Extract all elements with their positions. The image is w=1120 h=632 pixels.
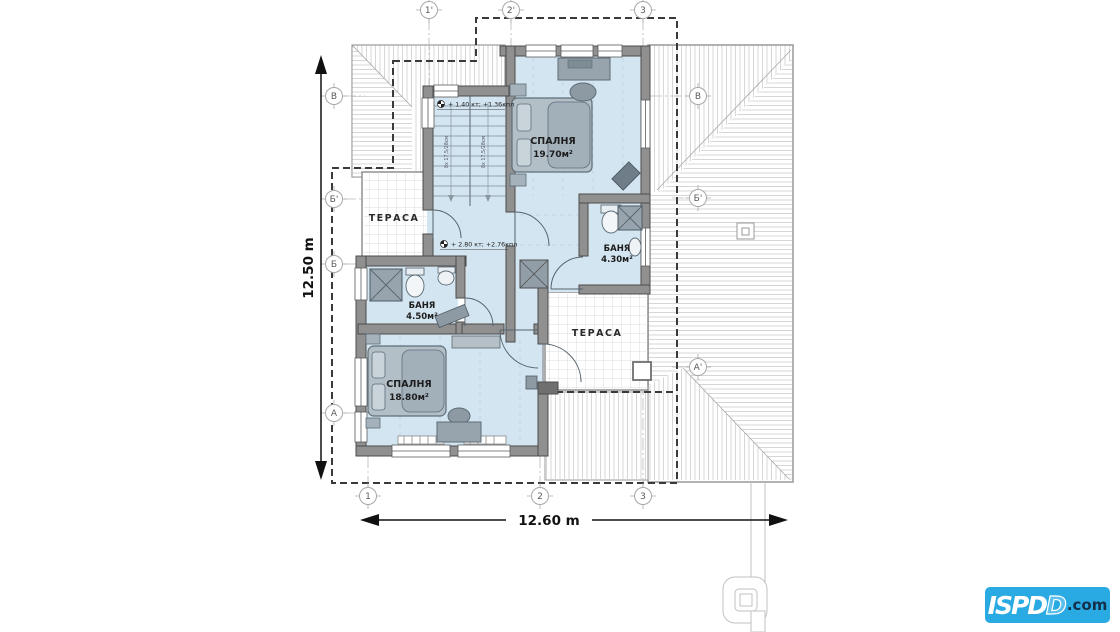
wall-unit-south (526, 376, 537, 389)
bath-west-label: БАНЯ (409, 301, 436, 311)
terrace-west-label: ТЕРАСА (369, 213, 420, 224)
terrace-east: ТЕРАСА (545, 292, 651, 390)
window (561, 45, 593, 57)
window (526, 45, 556, 57)
window (355, 358, 367, 406)
logo-text-suffix: .com (1067, 598, 1108, 613)
bath-east-area: 4.30м² (601, 255, 633, 265)
svg-text:3: 3 (640, 492, 646, 502)
duct-shaft (520, 260, 548, 288)
bedroom-south-label: СПАЛНЯ (386, 379, 431, 390)
bedroom-north-label: СПАЛНЯ (530, 136, 575, 147)
svg-text:Б: Б (331, 260, 337, 270)
level-annotation-lower: + 2.80 кт; +2.76кпл (440, 241, 517, 250)
window (641, 228, 650, 266)
stair-note-left: 8х 17,5/28см (444, 136, 450, 168)
svg-text:А: А (331, 409, 338, 419)
grid-marker-left-v: В (321, 83, 347, 109)
level-lower-text: + 2.80 кт; +2.76кпл (451, 242, 517, 249)
shower-east (618, 206, 642, 230)
chimney (737, 223, 754, 239)
level-upper-text: + 1.40 кт; +1.36кпл (448, 102, 514, 109)
level-annotation-upper: + 1.40 кт; +1.36кпл (437, 101, 514, 110)
grid-marker-left-b: Б (321, 251, 347, 277)
grid-marker-bottom-1: 1 (355, 483, 381, 509)
ispdd-logo[interactable]: ISPDD.com (985, 587, 1110, 623)
grid-marker-bottom-3: 3 (630, 483, 656, 509)
terrace-column (633, 362, 651, 380)
toilet-west (406, 268, 424, 297)
svg-text:В: В (331, 92, 337, 102)
bath-west-area: 4.50м² (406, 312, 438, 322)
grid-marker-bottom-2: 2 (527, 483, 553, 509)
svg-text:Б': Б' (694, 194, 703, 204)
window (458, 445, 510, 457)
window (355, 412, 367, 442)
floor-plan-page: ТЕРАСА ТЕРАСА 8х 17,5/28см 8х 17,5/28см (0, 0, 1120, 632)
window (392, 445, 450, 457)
window (434, 85, 458, 97)
logo-text-outline-d: D (1046, 593, 1066, 618)
svg-text:1: 1 (365, 492, 371, 502)
logo-text-main: ISPD (988, 593, 1046, 618)
grid-marker-left-b1: Б' (321, 186, 347, 212)
window (641, 100, 650, 148)
bath-east-label: БАНЯ (604, 244, 631, 254)
grid-marker-top-2: 2' (498, 0, 524, 23)
bedroom-north-area: 19.70м² (533, 150, 573, 160)
downpipe-detail (723, 482, 767, 632)
shower-west (370, 269, 402, 301)
sink-west (438, 267, 455, 285)
roof-right (648, 45, 793, 482)
svg-text:Б': Б' (330, 195, 339, 205)
svg-text:3: 3 (640, 6, 646, 16)
dimension-horizontal: 12.60 m (360, 510, 788, 529)
window (422, 98, 434, 128)
wardrobe-south (452, 336, 500, 348)
svg-text:2': 2' (507, 6, 515, 16)
window (355, 268, 367, 300)
sink-east (629, 238, 641, 256)
roof-bottom-center (545, 392, 648, 480)
dimension-vertical: 12.50 m (301, 55, 327, 480)
floor-plan-drawing: ТЕРАСА ТЕРАСА 8х 17,5/28см 8х 17,5/28см (0, 0, 1120, 632)
terrace-east-label: ТЕРАСА (572, 328, 623, 339)
grid-marker-top-3: 3 (630, 0, 656, 23)
stair-note-right: 8х 17,5/28см (481, 136, 487, 168)
dimension-vertical-label: 12.50 m (301, 237, 317, 298)
svg-text:А': А' (694, 363, 703, 373)
terrace-west: ТЕРАСА (362, 172, 428, 258)
window (598, 45, 622, 57)
bedroom-south-area: 18.80м² (389, 393, 429, 403)
svg-text:1': 1' (425, 6, 433, 16)
grid-marker-left-a: А (321, 400, 347, 426)
svg-text:2: 2 (537, 492, 543, 502)
dimension-horizontal-label: 12.60 m (518, 513, 579, 529)
grid-marker-top-1: 1' (416, 0, 442, 23)
svg-text:В: В (695, 92, 701, 102)
